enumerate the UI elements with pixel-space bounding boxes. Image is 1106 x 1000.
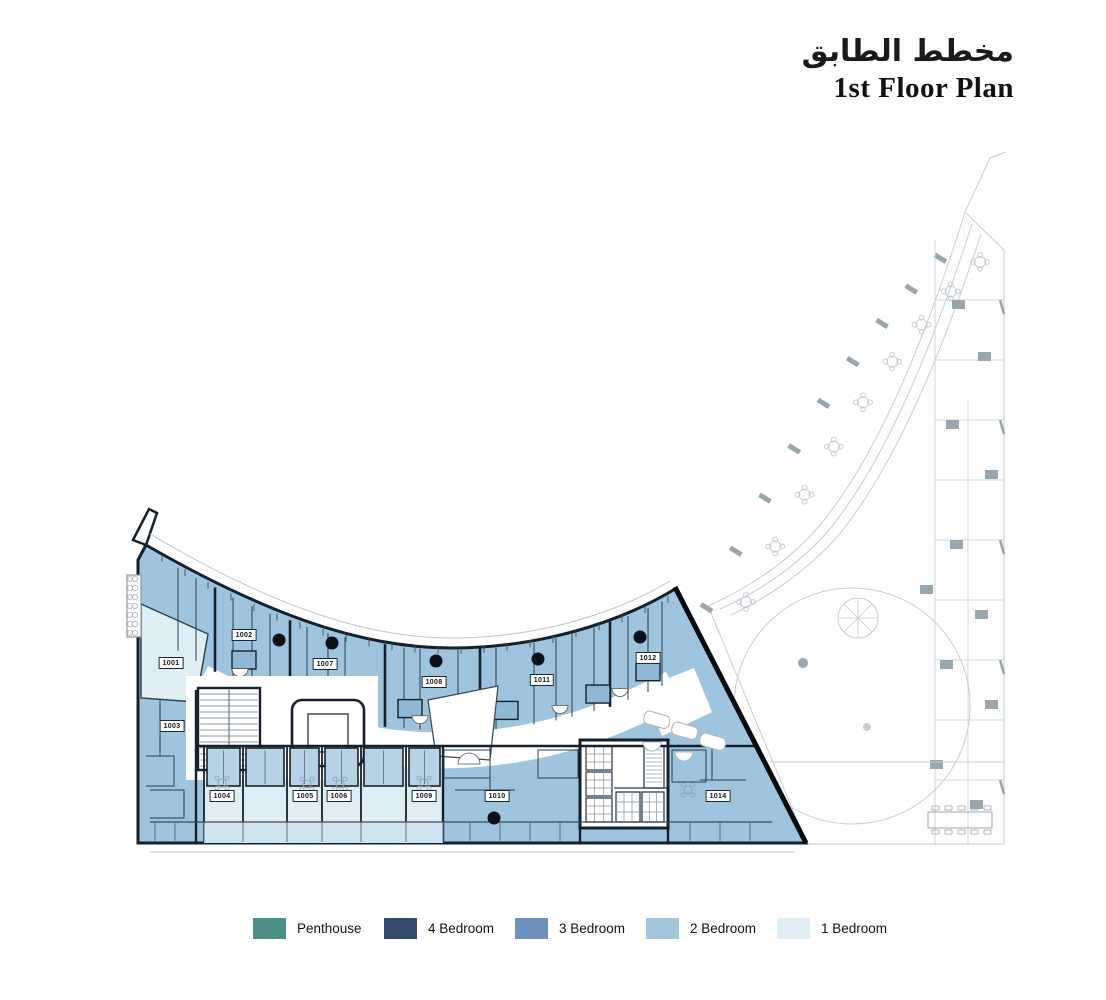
unit-label-1002: 1002 xyxy=(232,629,257,641)
floor-plan-page: مخطط الطابق 1st Floor Plan xyxy=(0,0,1106,1000)
unit-label-1008: 1008 xyxy=(422,676,447,688)
legend-item: 2 Bedroom xyxy=(646,918,756,939)
balcony-strip-light xyxy=(204,822,443,843)
unit-label-1011: 1011 xyxy=(530,674,554,686)
legend-label: Penthouse xyxy=(297,921,362,936)
legend-swatch xyxy=(515,918,548,939)
legend-swatch xyxy=(777,918,810,939)
core-lifts xyxy=(580,740,668,828)
legend-swatch xyxy=(384,918,417,939)
spiral-stair xyxy=(838,598,878,638)
legend-swatch xyxy=(253,918,286,939)
unit-label-1012: 1012 xyxy=(636,652,661,664)
unit-label-1007: 1007 xyxy=(313,658,338,670)
legend-label: 4 Bedroom xyxy=(428,921,494,936)
legend-label: 2 Bedroom xyxy=(690,921,756,936)
gray-column-dot xyxy=(798,658,808,668)
legend-label: 3 Bedroom xyxy=(559,921,625,936)
gray-column-dot xyxy=(863,723,871,731)
unit-label-1014: 1014 xyxy=(706,790,731,802)
unit-label-1004: 1004 xyxy=(210,790,235,802)
unit-label-1010: 1010 xyxy=(485,790,510,802)
floor-plan-drawing xyxy=(0,0,1106,1000)
unit-label-1001: 1001 xyxy=(159,657,184,669)
legend-item: 1 Bedroom xyxy=(777,918,887,939)
legend-item: 3 Bedroom xyxy=(515,918,625,939)
unit-label-1006: 1006 xyxy=(327,790,352,802)
entry-notch xyxy=(133,509,157,545)
legend-item: 4 Bedroom xyxy=(384,918,494,939)
unit-label-1009: 1009 xyxy=(412,790,437,802)
legend-swatch xyxy=(646,918,679,939)
legend-label: 1 Bedroom xyxy=(821,921,887,936)
legend-item: Penthouse xyxy=(253,918,362,939)
legend: Penthouse4 Bedroom3 Bedroom2 Bedroom1 Be… xyxy=(0,910,1106,950)
unit-label-1005: 1005 xyxy=(293,790,318,802)
unit-label-1003: 1003 xyxy=(160,720,185,732)
stone-hatch xyxy=(127,575,141,637)
